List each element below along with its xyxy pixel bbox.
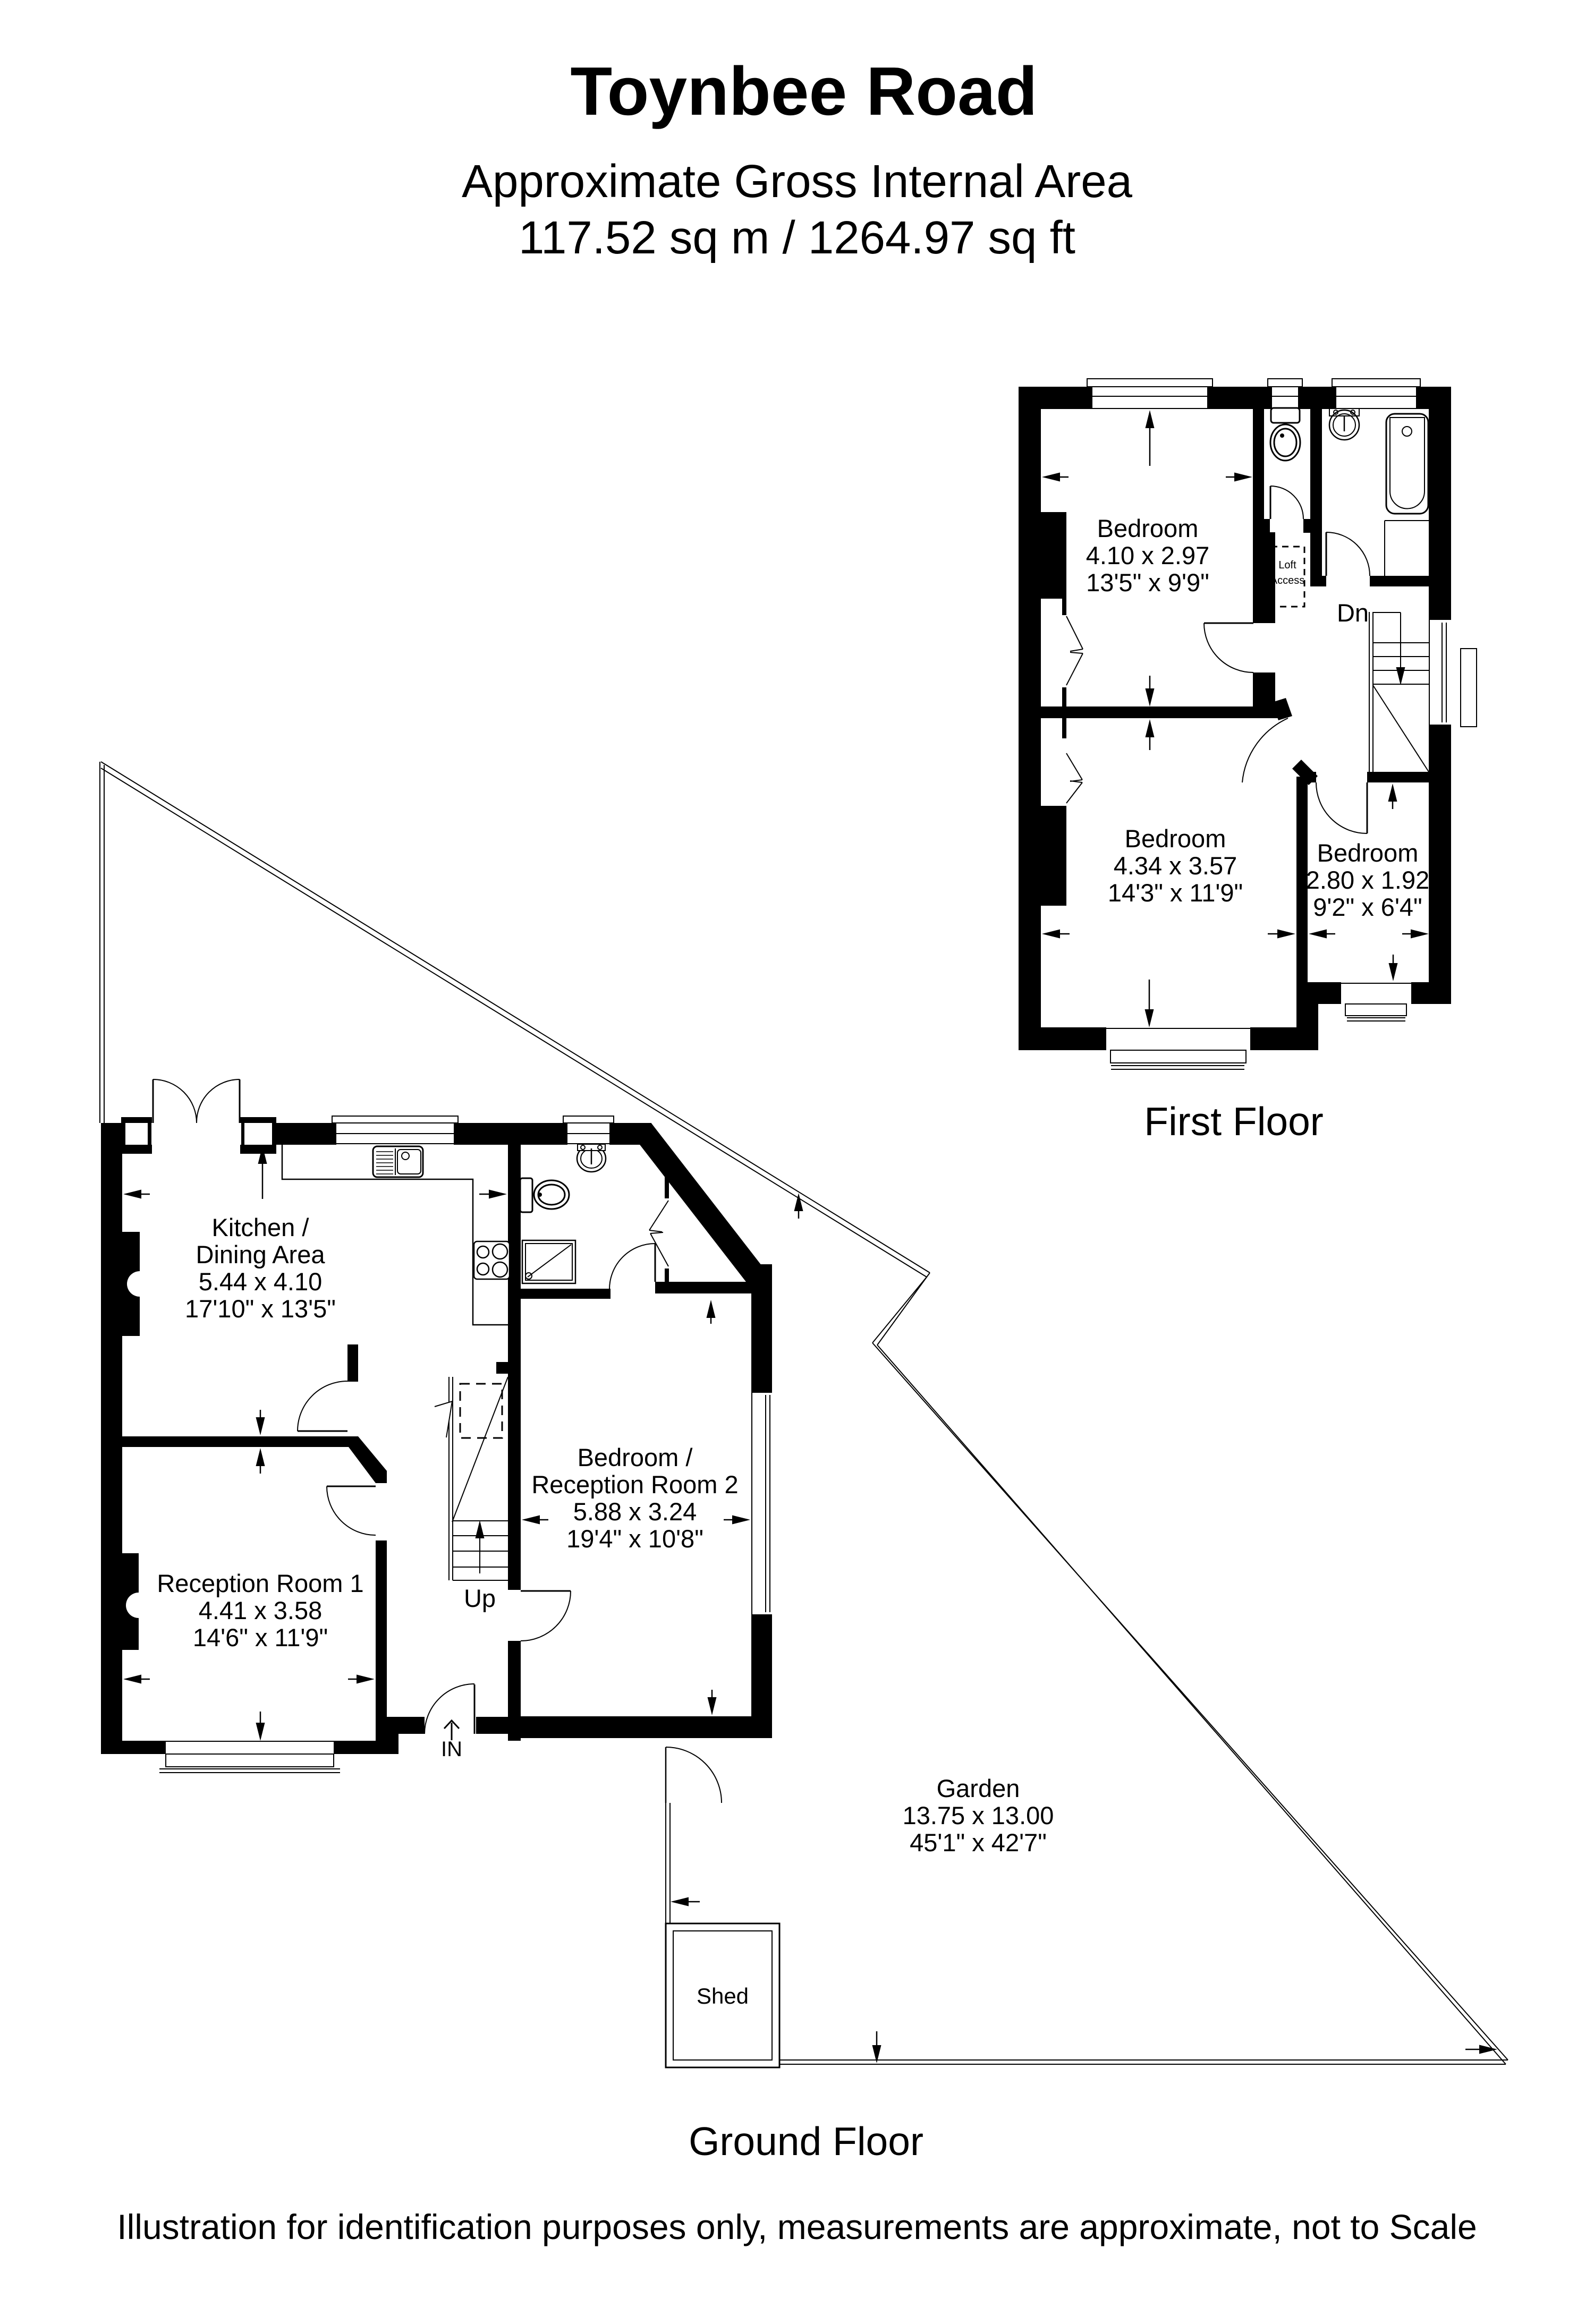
svg-text:IN: IN (441, 1738, 462, 1761)
svg-text:14'3" x 11'9": 14'3" x 11'9" (1108, 879, 1243, 907)
svg-text:13.75 x 13.00: 13.75 x 13.00 (903, 1801, 1054, 1829)
svg-text:Garden: Garden (937, 1774, 1020, 1802)
svg-text:Toynbee Road: Toynbee Road (570, 53, 1037, 130)
svg-text:Bedroom: Bedroom (1097, 514, 1199, 542)
svg-text:Illustration for identificatio: Illustration for identification purposes… (117, 2207, 1477, 2246)
svg-text:Approximate Gross Internal Are: Approximate Gross Internal Area (462, 156, 1133, 207)
svg-text:Loft: Loft (1278, 559, 1296, 571)
svg-text:Kitchen /: Kitchen / (212, 1213, 310, 1241)
svg-text:Bedroom: Bedroom (1317, 839, 1419, 867)
svg-text:Access: Access (1270, 575, 1304, 586)
svg-text:Ground Floor: Ground Floor (689, 2119, 923, 2164)
svg-text:Reception Room 1: Reception Room 1 (157, 1569, 363, 1597)
svg-text:45'1" x 42'7": 45'1" x 42'7" (910, 1828, 1047, 1857)
svg-text:13'5" x 9'9": 13'5" x 9'9" (1086, 568, 1209, 597)
svg-text:Up: Up (464, 1584, 496, 1612)
svg-text:4.34 x 3.57: 4.34 x 3.57 (1114, 852, 1237, 880)
svg-text:Reception Room 2: Reception Room 2 (531, 1470, 738, 1499)
svg-text:5.88 x 3.24: 5.88 x 3.24 (573, 1497, 697, 1526)
svg-text:117.52 sq m / 1264.97 sq ft: 117.52 sq m / 1264.97 sq ft (519, 212, 1075, 263)
svg-text:Dn: Dn (1337, 599, 1369, 627)
svg-text:First Floor: First Floor (1144, 1099, 1324, 1144)
svg-text:4.10 x 2.97: 4.10 x 2.97 (1086, 541, 1210, 569)
svg-text:4.41 x 3.58: 4.41 x 3.58 (199, 1596, 323, 1624)
svg-text:9'2" x 6'4": 9'2" x 6'4" (1313, 893, 1422, 921)
svg-text:14'6" x 11'9": 14'6" x 11'9" (193, 1623, 328, 1652)
svg-text:5.44 x 4.10: 5.44 x 4.10 (199, 1267, 323, 1296)
svg-text:2.80 x 1.92: 2.80 x 1.92 (1306, 866, 1430, 894)
svg-text:Bedroom /: Bedroom / (578, 1443, 693, 1471)
svg-text:19'4" x 10'8": 19'4" x 10'8" (566, 1525, 703, 1553)
svg-text:17'10" x 13'5": 17'10" x 13'5" (185, 1295, 336, 1323)
svg-text:Shed: Shed (697, 1984, 749, 2008)
svg-text:Bedroom: Bedroom (1125, 824, 1226, 853)
svg-text:Dining Area: Dining Area (196, 1240, 326, 1269)
